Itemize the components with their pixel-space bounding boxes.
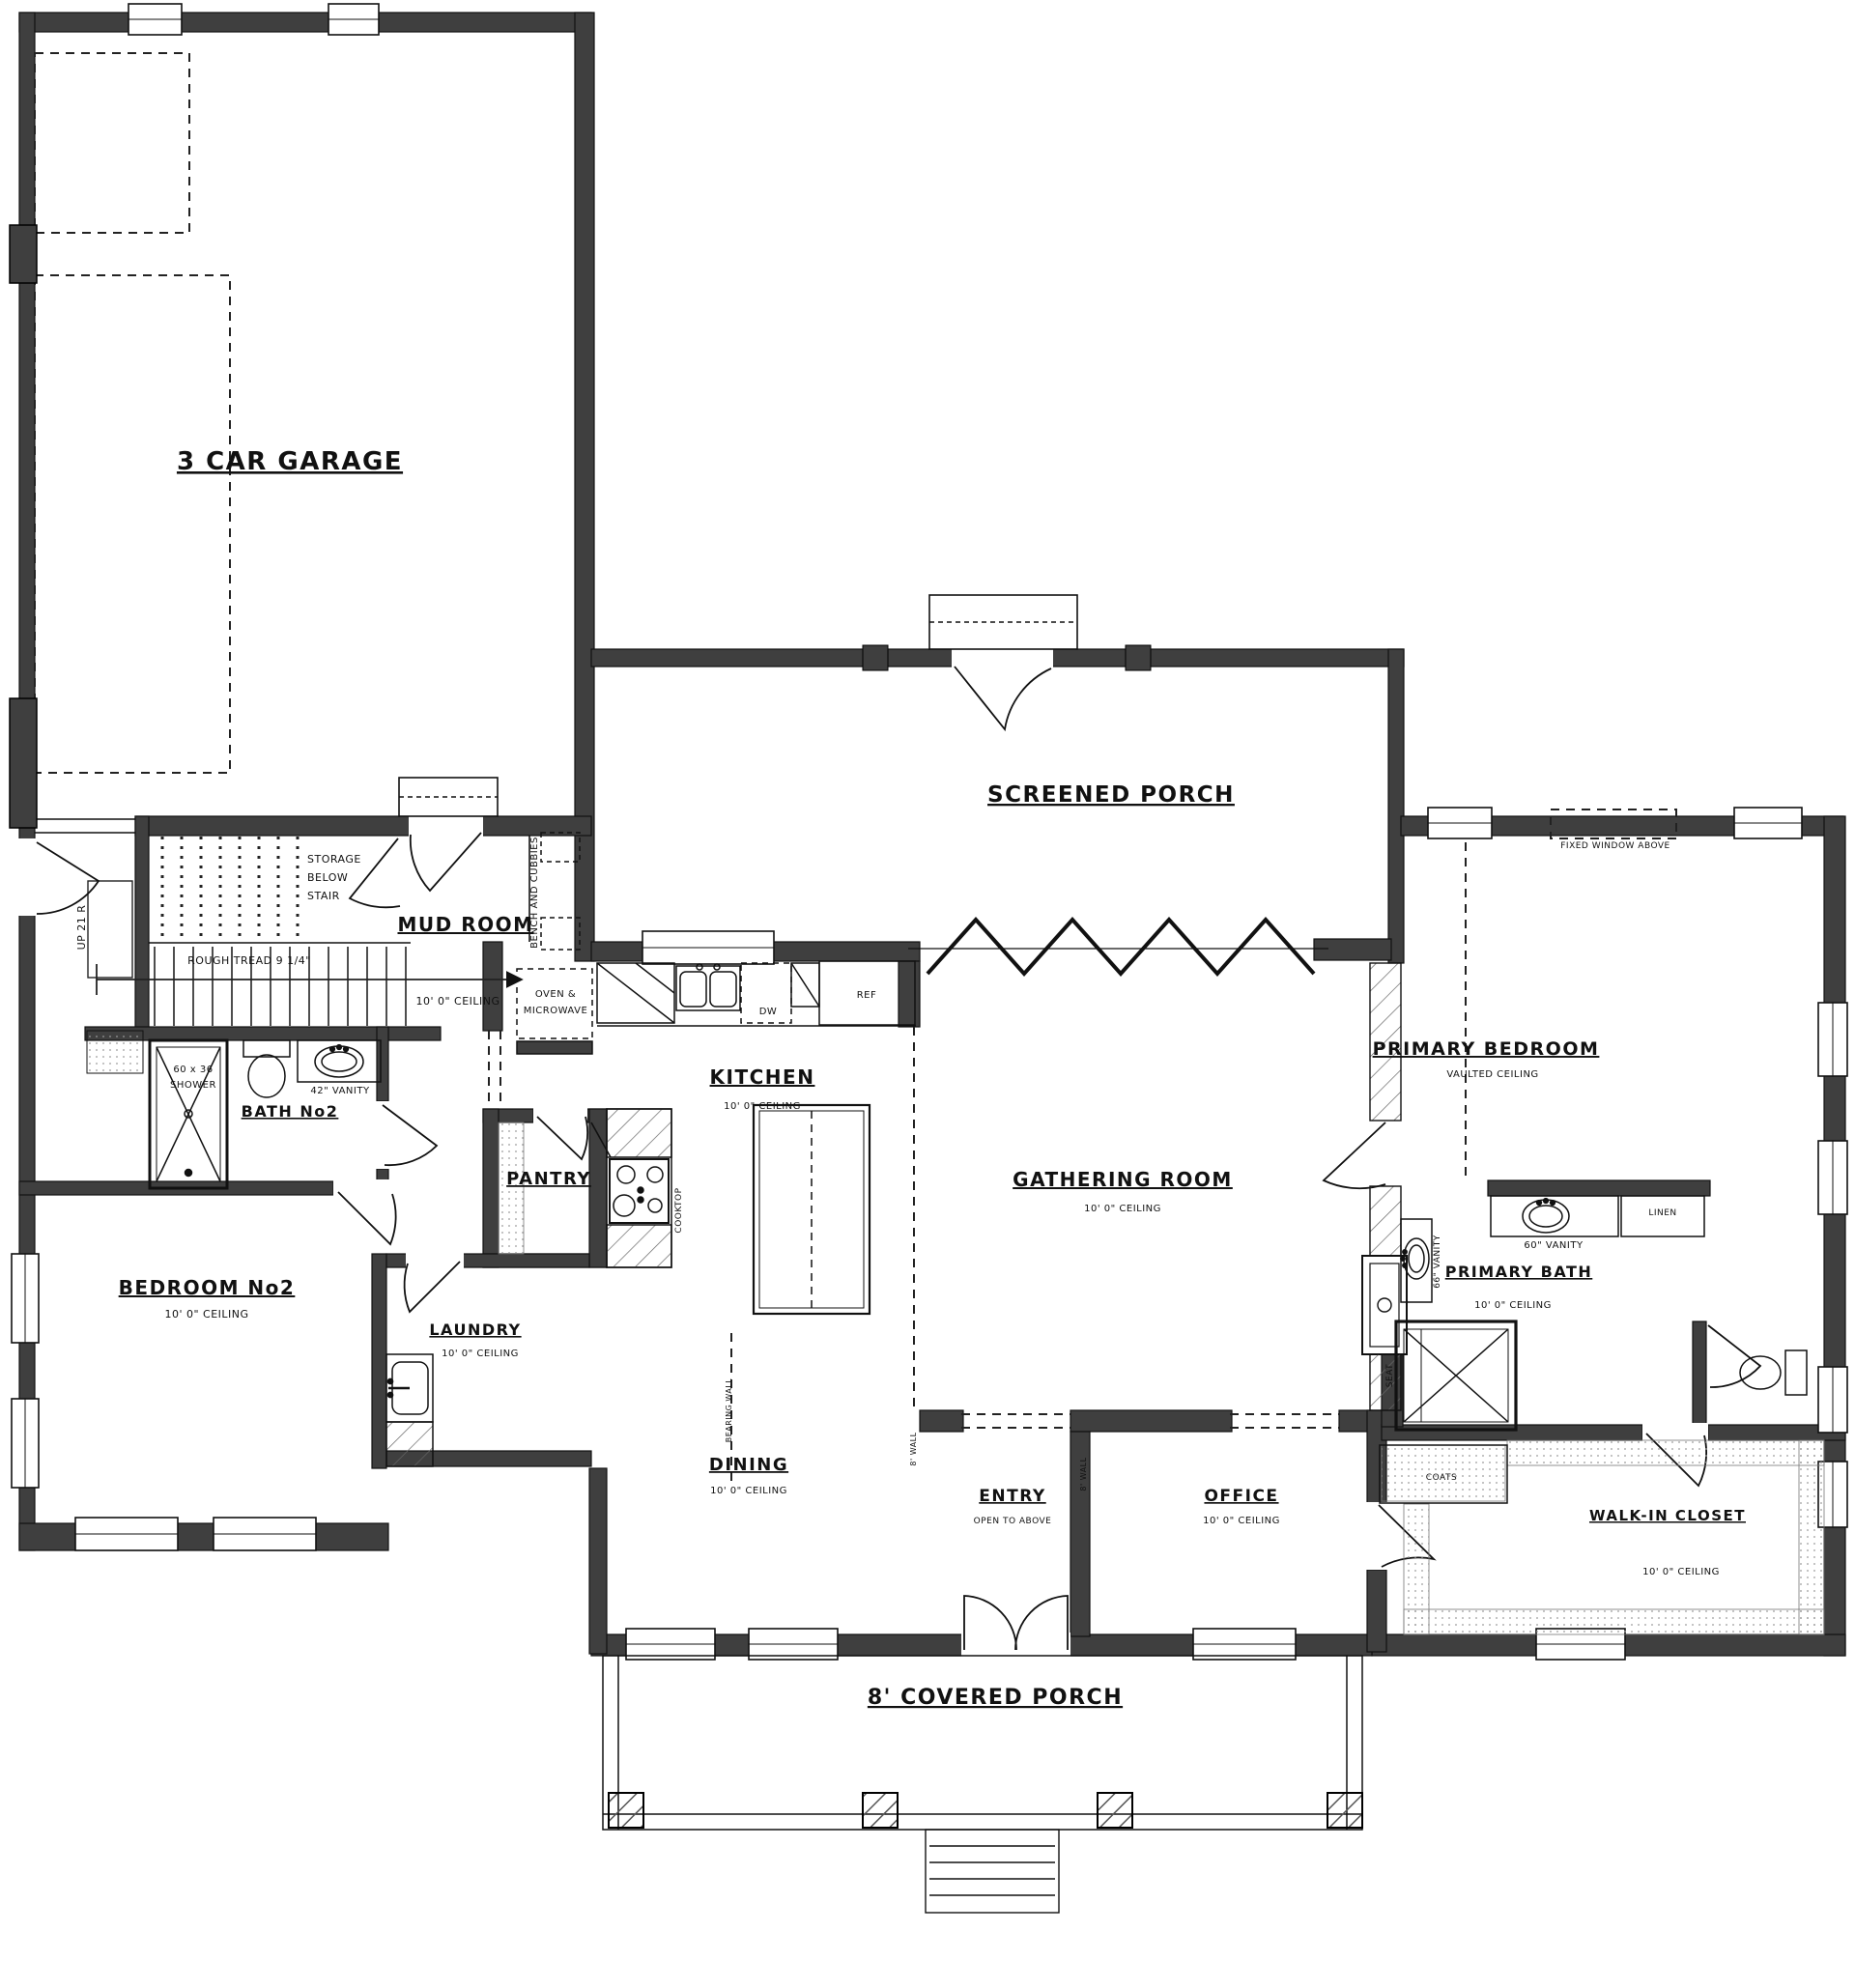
ceiling-label-gathering-room: 10' 0" CEILING bbox=[1084, 1204, 1161, 1214]
laundry-fixtures bbox=[386, 1267, 433, 1466]
room-label-dining: DINING bbox=[709, 1455, 788, 1475]
labels-layer: 3 CAR GARAGESCREENED PORCHMUD ROOM10' 0"… bbox=[75, 447, 1746, 1710]
screen-wall bbox=[863, 645, 1328, 974]
ceiling-label-bedroom-no2: 10' 0" CEILING bbox=[164, 1308, 248, 1321]
porch-stoop bbox=[399, 595, 1077, 816]
ceiling-label-laundry: 10' 0" CEILING bbox=[442, 1349, 519, 1359]
doors-layer bbox=[17, 647, 1760, 1658]
ceiling-label-mud-room: 10' 0" CEILING bbox=[415, 995, 499, 1008]
annotation-bearing-wall: BEARING WALL bbox=[725, 1378, 733, 1443]
annotation-vanity-60: 60" VANITY bbox=[1524, 1240, 1584, 1251]
ceiling-label-walk-in-closet: 10' 0" CEILING bbox=[1642, 1567, 1720, 1577]
annotation-rough-tread: ROUGH TREAD 9 1/4" bbox=[187, 954, 311, 967]
room-label-bedroom-no2: BEDROOM No2 bbox=[119, 1276, 296, 1299]
annotation-fixed-window-above: FIXED WINDOW ABOVE bbox=[1560, 841, 1669, 851]
room-label-kitchen: KITCHEN bbox=[710, 1065, 815, 1089]
room-label-bath-no2: BATH No2 bbox=[242, 1102, 339, 1121]
annotation-coats: COATS bbox=[1426, 1473, 1457, 1483]
ceiling-label-kitchen: 10' 0" CEILING bbox=[724, 1101, 801, 1112]
walls-layer bbox=[19, 13, 1845, 1656]
room-label-covered-porch: 8' COVERED PORCH bbox=[868, 1686, 1123, 1710]
dashed-layer bbox=[35, 53, 1676, 1488]
room-label-entry: ENTRY bbox=[979, 1487, 1045, 1506]
annotation-ref: REF bbox=[857, 990, 877, 1001]
annotation-vanity-66: 66" VANITY bbox=[1433, 1235, 1442, 1289]
floor-plan-page: 3 CAR GARAGESCREENED PORCHMUD ROOM10' 0"… bbox=[0, 0, 1855, 1988]
annotation-up-21-r: UP 21 R bbox=[75, 905, 88, 951]
ceiling-label-dining: 10' 0" CEILING bbox=[710, 1486, 787, 1496]
room-label-garage: 3 CAR GARAGE bbox=[177, 447, 403, 476]
annotation-seat: SEAT bbox=[1385, 1364, 1395, 1387]
annotation-storage-below-stair: STORAGE bbox=[307, 853, 361, 866]
floor-plan-drawing: 3 CAR GARAGESCREENED PORCHMUD ROOM10' 0"… bbox=[0, 0, 1855, 1988]
room-label-mud-room: MUD ROOM bbox=[397, 913, 533, 936]
room-label-gathering-room: GATHERING ROOM bbox=[1013, 1168, 1233, 1191]
primary-bath-fixtures bbox=[1396, 1196, 1807, 1430]
annotation-cooktop: COOKTOP bbox=[674, 1187, 684, 1233]
room-label-walk-in-closet: WALK-IN CLOSET bbox=[1589, 1507, 1746, 1524]
annotation-storage-below-stair: STAIR bbox=[307, 890, 340, 902]
room-label-pantry: PANTRY bbox=[506, 1169, 591, 1189]
annotation-vanity-42: 42" VANITY bbox=[310, 1086, 370, 1096]
room-label-screened-porch: SCREENED PORCH bbox=[987, 782, 1235, 808]
annotation-shower-60x36: 60 x 36 bbox=[173, 1065, 213, 1075]
annotation-oven-microwave: MICROWAVE bbox=[524, 1006, 588, 1016]
shelving-stipple bbox=[499, 1122, 1824, 1634]
annotation-shower-60x36: SHOWER bbox=[170, 1080, 216, 1091]
ceiling-label-primary-bath: 10' 0" CEILING bbox=[1474, 1300, 1552, 1311]
annotation-dw: DW bbox=[759, 1007, 778, 1017]
annotation-linen: LINEN bbox=[1648, 1208, 1676, 1218]
annotation-storage-below-stair: BELOW bbox=[307, 871, 348, 884]
annotation-eight-wall-office: 8' WALL bbox=[1079, 1457, 1088, 1491]
ceiling-label-office: 10' 0" CEILING bbox=[1203, 1516, 1280, 1526]
annotation-bench-and-cubbies: BENCH AND CUBBIES bbox=[529, 837, 540, 949]
ceiling-label-entry: OPEN TO ABOVE bbox=[974, 1517, 1052, 1526]
annotation-oven-microwave: OVEN & bbox=[535, 989, 576, 1000]
fireplace bbox=[1362, 963, 1407, 1410]
ceiling-label-primary-bedroom: VAULTED CEILING bbox=[1446, 1069, 1538, 1080]
annotation-eight-wall-entry: 8' WALL bbox=[909, 1432, 918, 1465]
room-label-office: OFFICE bbox=[1204, 1487, 1278, 1506]
room-label-laundry: LAUNDRY bbox=[429, 1321, 521, 1339]
room-label-primary-bedroom: PRIMARY BEDROOM bbox=[1373, 1038, 1600, 1060]
room-label-primary-bath: PRIMARY BATH bbox=[1445, 1263, 1593, 1281]
